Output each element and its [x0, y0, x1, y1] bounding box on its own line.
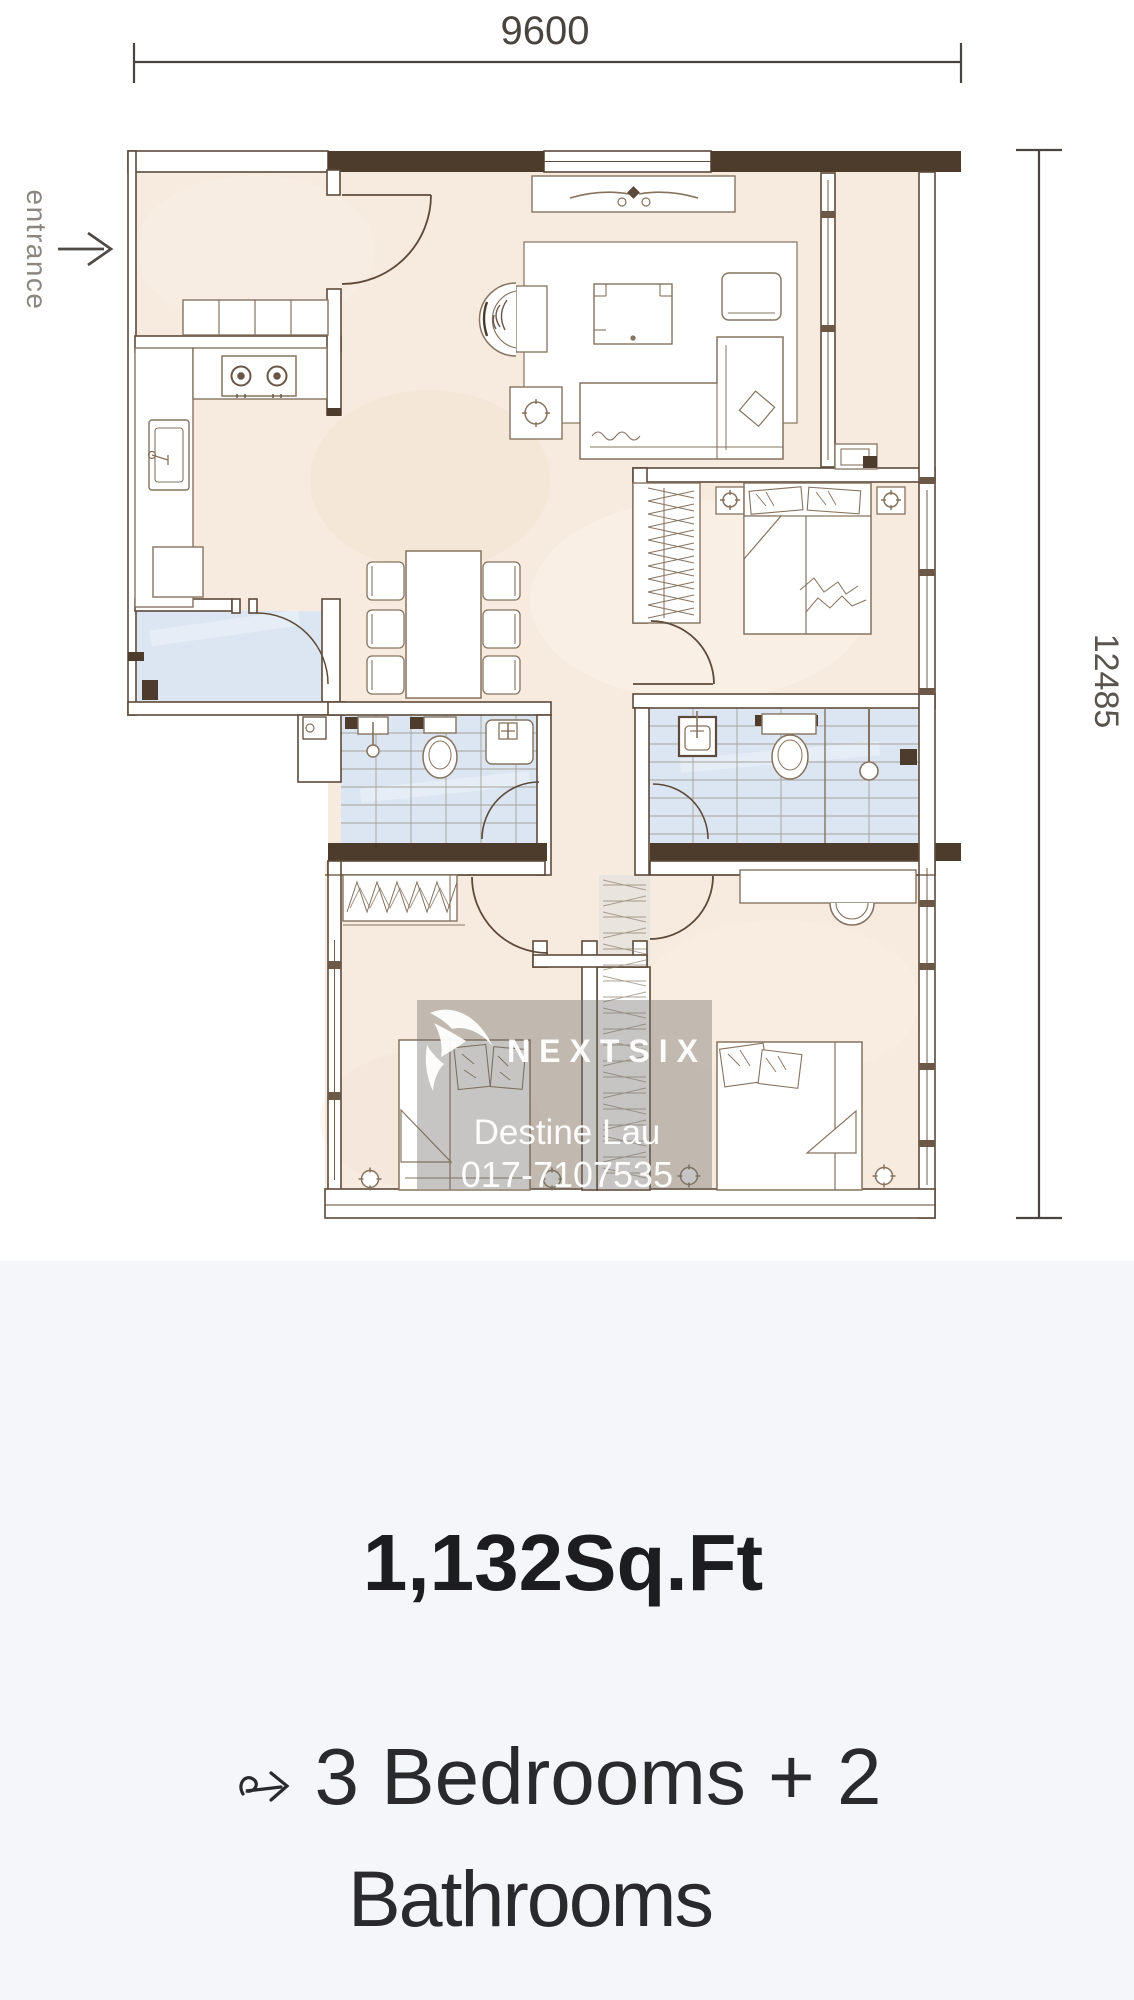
svg-text:entrance: entrance: [21, 190, 52, 311]
svg-text:12485: 12485: [1087, 634, 1125, 729]
svg-text:NEXTSIX: NEXTSIX: [507, 1033, 707, 1069]
svg-text:9600: 9600: [501, 9, 590, 53]
svg-text:Destine Lau: Destine Lau: [474, 1113, 661, 1152]
svg-text:017-7107535: 017-7107535: [461, 1154, 673, 1195]
